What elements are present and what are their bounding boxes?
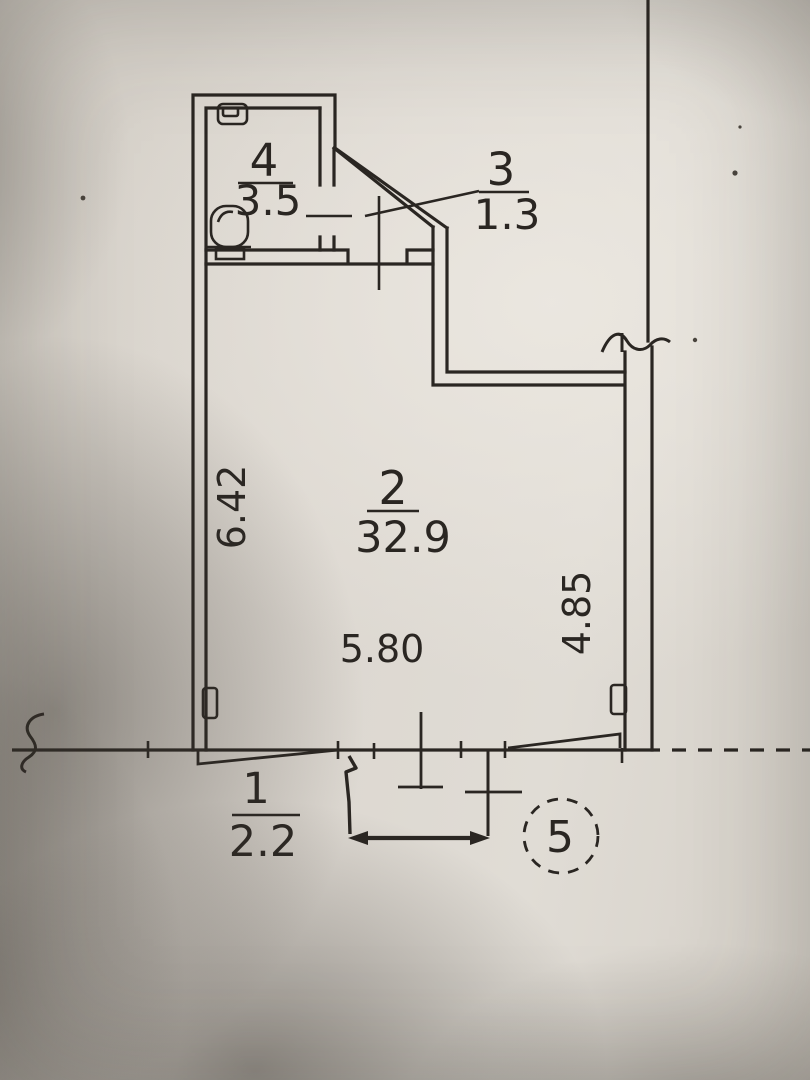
break-symbol-right — [602, 333, 670, 352]
dimension-bottom: 5.80 — [340, 627, 425, 671]
room3-leader-line — [365, 191, 479, 216]
dimension-right: 4.85 — [555, 571, 599, 656]
room4-area: 3.5 — [235, 176, 302, 225]
break-symbol-left — [22, 714, 44, 772]
room2-number: 2 — [378, 461, 407, 515]
paper-specks — [81, 125, 742, 342]
corridor-wall — [206, 250, 433, 264]
window-casement-right — [508, 734, 620, 748]
bathroom-partition-wall — [320, 108, 334, 250]
room1-area: 2.2 — [229, 817, 297, 867]
window-ticks — [148, 741, 622, 763]
door-marks — [306, 196, 379, 290]
floor-plan-photo: 4 3.5 3 1.3 2 32.9 1 2.2 6.42 5.80 4.85 … — [0, 0, 810, 1080]
detail-marker-5: 5 — [524, 799, 598, 873]
detail-marker-number: 5 — [546, 812, 574, 863]
radiator-niches — [203, 685, 626, 718]
window-casement-left — [198, 750, 338, 764]
room1-number: 1 — [242, 764, 269, 814]
floor-plan-drawing: 4 3.5 3 1.3 2 32.9 1 2.2 6.42 5.80 4.85 … — [0, 0, 810, 1080]
balcony-outline — [346, 750, 522, 845]
balcony-left-line — [346, 756, 356, 834]
balcony-cross-ticks — [398, 787, 522, 792]
room2-area: 32.9 — [355, 513, 451, 563]
dimension-left: 6.42 — [210, 465, 254, 550]
room3-number: 3 — [487, 143, 516, 196]
room3-area: 1.3 — [474, 190, 541, 239]
